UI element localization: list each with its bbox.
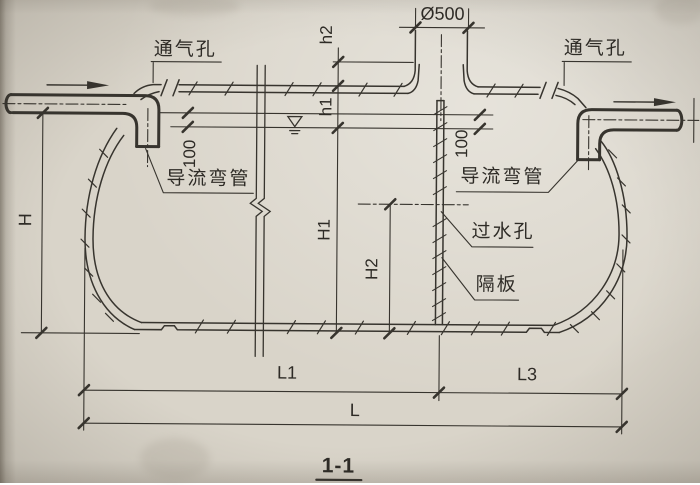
label-h2: h2	[318, 25, 335, 44]
photo-background: 通气孔 通气孔 Ø500 h2 h1 100 100 导流弯管 导流弯管 过水孔…	[0, 0, 700, 483]
section-drawing: 通气孔 通气孔 Ø500 h2 h1 100 100 导流弯管 导流弯管 过水孔…	[0, 0, 700, 485]
label-hole-height: H2	[363, 258, 380, 280]
label-total-length: L	[350, 401, 360, 419]
label-guide-elbow-left: 导流弯管	[166, 169, 250, 189]
label-vent-left: 通气孔	[154, 40, 217, 59]
label-water-depth: H1	[315, 219, 332, 241]
label-water-pass-hole: 过水孔	[471, 222, 534, 241]
shell-hatch-marks	[80, 81, 631, 336]
flow-arrow-left-icon	[47, 81, 109, 89]
vent-hole-right-mark	[540, 82, 546, 98]
label-overall-height: H	[16, 213, 34, 226]
label-h1: h1	[317, 97, 334, 116]
label-outlet-drop: 100	[453, 130, 470, 158]
label-vent-right: 通气孔	[564, 39, 627, 58]
water-hole-centerline	[358, 204, 468, 205]
section-title: 1-1	[322, 455, 356, 476]
manhole-centerline	[441, 35, 442, 121]
vent-hole-left-mark	[161, 80, 167, 96]
vent-hole-left-mark	[173, 80, 179, 96]
partition-baffle	[432, 101, 447, 325]
water-level-icon	[288, 117, 302, 134]
label-guide-elbow-right: 导流弯管	[460, 167, 544, 187]
label-chamber1-length: L1	[277, 363, 297, 381]
partition-hatch	[432, 107, 446, 321]
label-chamber3-length: L3	[517, 365, 537, 383]
label-baffle: 隔板	[476, 275, 518, 294]
inlet-pipe	[6, 95, 159, 147]
dimension-lines	[21, 6, 695, 435]
label-manhole-diameter: Ø500	[420, 4, 464, 22]
flow-arrow-right-icon	[614, 98, 676, 106]
outlet-pipe	[578, 110, 682, 161]
label-inlet-drop: 100	[181, 140, 198, 168]
break-lines	[249, 65, 271, 356]
